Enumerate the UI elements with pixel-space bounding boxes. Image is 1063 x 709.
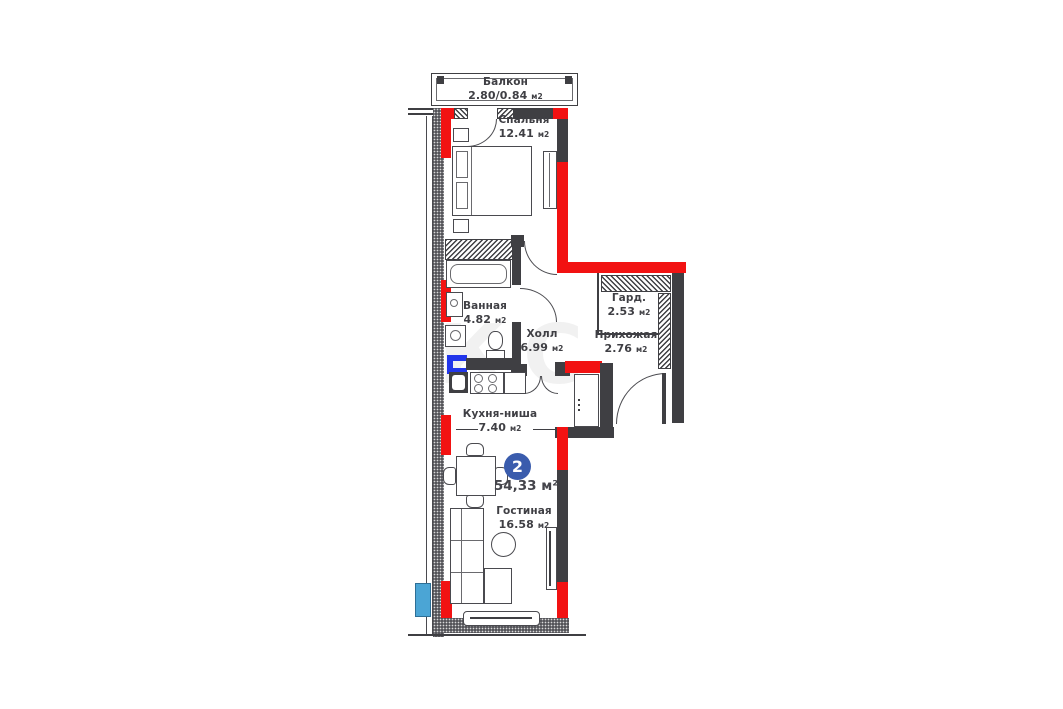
wall-pier <box>600 363 613 430</box>
sofa-back-line <box>461 509 462 603</box>
floor-plan-page: { "plan": { "badge": { "number": "2", "a… <box>0 0 1063 709</box>
sink-basin <box>450 299 458 307</box>
dining-chair <box>466 443 484 456</box>
wall-right <box>672 273 684 423</box>
window-sill <box>454 108 468 119</box>
room-area: 2.80/0.84 м2 <box>433 89 578 103</box>
wall-segment <box>557 470 568 582</box>
bed-pillow <box>456 151 468 178</box>
dining-chair <box>443 467 456 485</box>
wall-segment <box>511 235 524 247</box>
door-arc-bathroom <box>520 288 557 322</box>
room-label-hall: Холл 6.99 м2 <box>506 328 578 355</box>
burner <box>488 374 497 383</box>
door-arc-entrance <box>616 373 666 424</box>
sofa-cushion-line <box>451 572 483 573</box>
window-glass-line <box>470 617 532 619</box>
door-arc-balcony <box>467 119 497 147</box>
hanger-rail-hatch <box>601 275 671 292</box>
kitchen-boundary-dash <box>533 429 555 430</box>
red-wall-segment <box>557 262 686 273</box>
exterior-line <box>408 634 586 636</box>
fridge-dot <box>578 404 580 406</box>
washer-drum <box>450 330 461 341</box>
total-area-label: 54,33 м² <box>486 478 566 494</box>
burner <box>488 384 497 393</box>
exterior-line <box>408 113 433 115</box>
bed-blanket-line <box>471 147 472 215</box>
room-area: 6.99 м2 <box>506 341 578 355</box>
tv-stand <box>546 527 557 590</box>
burner <box>474 384 483 393</box>
nightstand <box>453 219 469 233</box>
sofa-chaise <box>484 568 512 604</box>
burner <box>474 374 483 383</box>
window-left-glazing <box>426 116 433 634</box>
bedroom-wardrobe <box>543 151 557 209</box>
sofa-cushion-line <box>451 540 483 541</box>
room-name: Балкон <box>433 76 578 89</box>
red-wall-segment <box>557 582 568 623</box>
toilet-bowl <box>488 331 503 350</box>
closet-hatch <box>445 239 514 260</box>
tv-line <box>549 531 551 586</box>
sofa <box>450 508 484 604</box>
room-area: 2.53 м2 <box>595 305 663 319</box>
fridge-dot <box>578 409 580 411</box>
room-area: 7.40 м2 <box>448 421 552 435</box>
red-wall-segment <box>557 427 568 470</box>
bathtub-inner <box>450 264 507 284</box>
apartment-rooms-badge: 2 <box>504 453 531 480</box>
door-arc-bedroom <box>524 241 557 275</box>
room-label-kitchen: Кухня-ниша 7.40 м2 <box>448 408 552 435</box>
fridge-dot <box>578 399 580 401</box>
room-area: 2.76 м2 <box>584 342 668 356</box>
counter-cabinet <box>504 372 526 394</box>
exterior-blue-panel <box>415 583 431 617</box>
room-name: Холл <box>506 328 578 341</box>
room-name: Гард. <box>595 292 663 305</box>
room-name: Кухня-ниша <box>448 408 552 421</box>
entrance-door-leaf <box>662 373 666 424</box>
nightstand <box>453 128 469 142</box>
room-label-balcony: Балкон 2.80/0.84 м2 <box>433 76 578 103</box>
wall-left <box>433 108 444 637</box>
coffee-table <box>491 532 516 557</box>
kitchen-sink-basin <box>452 375 465 390</box>
kitchen-boundary-dash <box>456 429 478 430</box>
bed-pillow <box>456 182 468 209</box>
red-wall-corner <box>441 108 454 119</box>
room-name: Прихожая <box>584 329 668 342</box>
wardrobe-line <box>549 153 550 207</box>
room-label-wardrobe: Гард. 2.53 м2 <box>595 292 663 319</box>
red-wall-segment <box>557 162 568 262</box>
room-label-entry: Прихожая 2.76 м2 <box>584 329 668 356</box>
exterior-line <box>408 108 433 110</box>
red-wall-segment <box>441 119 451 158</box>
red-lintel <box>565 361 602 373</box>
wall-segment <box>512 247 521 285</box>
